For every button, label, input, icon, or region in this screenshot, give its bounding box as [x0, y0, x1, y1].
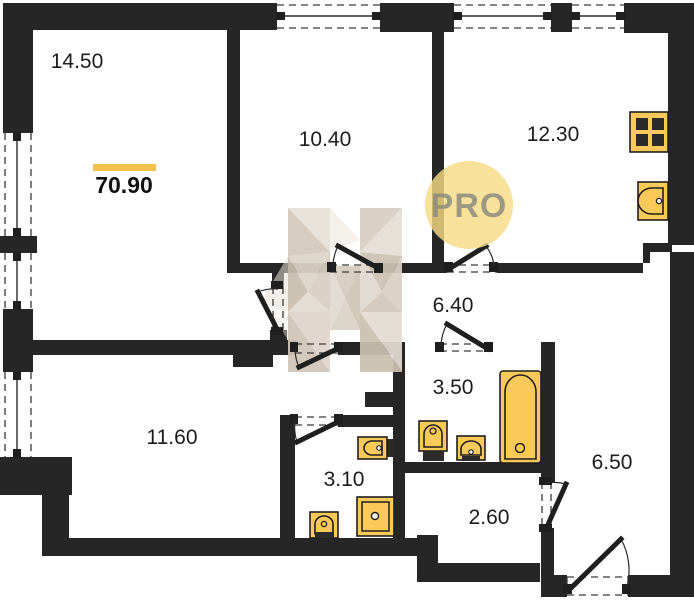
room-label-wc: 2.60 — [469, 506, 510, 529]
window — [276, 5, 381, 28]
wall — [497, 263, 643, 273]
bathroom-sink-icon — [457, 436, 485, 461]
small-sink-icon — [358, 437, 395, 459]
room-label-hallway: 6.40 — [433, 294, 474, 317]
total-area: 70.90 — [93, 164, 156, 198]
wall — [42, 538, 438, 556]
total-area-value: 70.90 — [95, 172, 153, 198]
wall — [551, 3, 572, 32]
wall — [541, 342, 555, 482]
wall — [338, 415, 393, 427]
wall — [280, 415, 295, 538]
wall — [628, 575, 694, 597]
wall — [668, 30, 694, 245]
watermark-pro-badge: PRO — [425, 161, 513, 249]
wall — [3, 309, 33, 372]
window — [5, 371, 31, 458]
wall — [670, 252, 694, 597]
washing-machine-icon — [357, 497, 394, 536]
room-label-bedroom-2: 11.60 — [147, 426, 198, 449]
wall — [380, 3, 454, 32]
toilet-icon — [419, 421, 447, 461]
room-label-living: 14.50 — [51, 50, 104, 73]
wall — [0, 236, 37, 253]
floor-plan-canvas: PRO — [0, 0, 694, 600]
window — [453, 5, 552, 28]
door-wc — [539, 477, 566, 532]
door-entrance — [563, 539, 631, 595]
room-label-bathroom: 3.50 — [433, 376, 474, 399]
door-bathroom — [435, 324, 493, 352]
toilet-2-icon — [310, 512, 338, 538]
room-label-bathroom-2: 3.10 — [324, 468, 365, 491]
wall — [0, 457, 72, 495]
wall — [33, 340, 295, 355]
floor-plan: PRO — [0, 0, 694, 600]
wall — [42, 493, 69, 538]
room-label-kitchen: 12.30 — [527, 123, 580, 146]
door-bathroom-2 — [290, 414, 343, 442]
watermark-pro-text: PRO — [431, 187, 508, 225]
wall — [3, 3, 277, 30]
room-label-corridor: 6.50 — [592, 451, 633, 474]
wall — [233, 353, 273, 367]
wall — [227, 30, 240, 273]
wall — [643, 243, 650, 263]
wall — [3, 3, 33, 133]
stove-icon — [630, 112, 668, 152]
window — [571, 5, 625, 28]
kitchen-sink-icon — [638, 182, 668, 220]
window — [5, 132, 31, 237]
wall — [624, 3, 694, 33]
window — [5, 252, 31, 310]
bathtub-icon — [500, 371, 541, 463]
total-area-bar — [93, 164, 156, 171]
wall — [541, 528, 554, 597]
room-label-bedroom: 10.40 — [299, 128, 352, 151]
door-kitchen — [444, 246, 498, 272]
